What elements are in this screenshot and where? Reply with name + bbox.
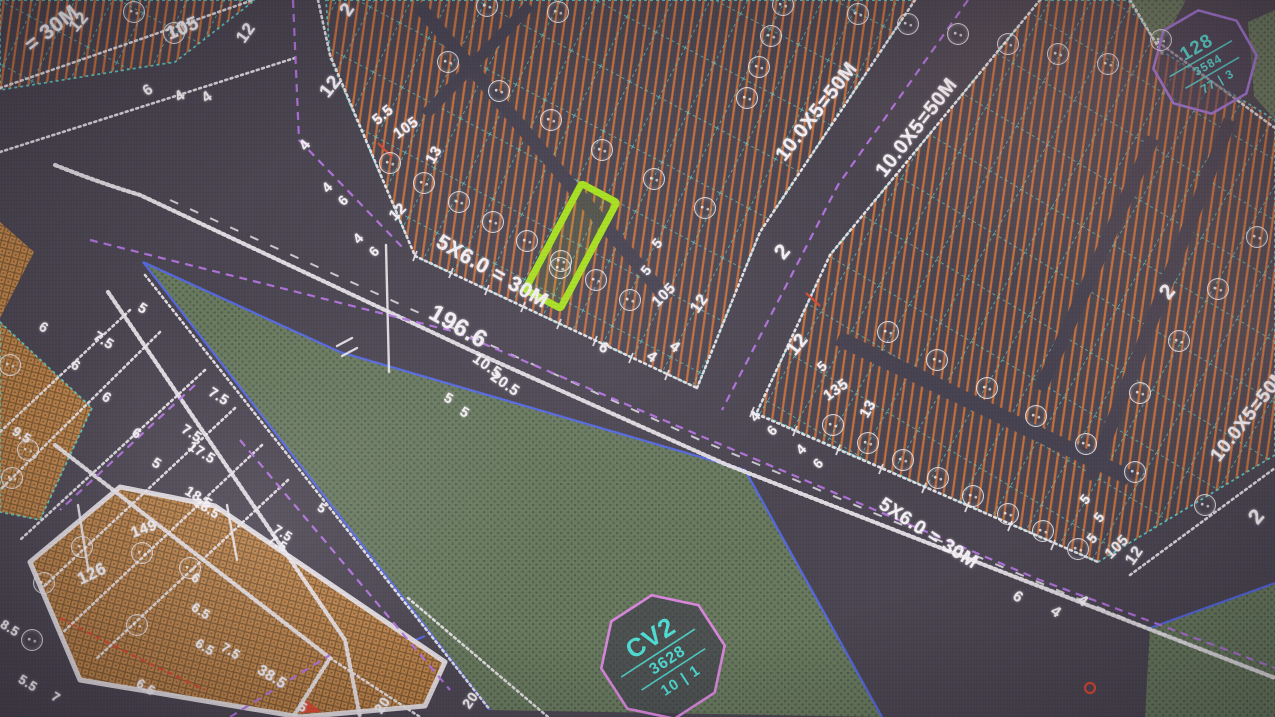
block-top-left: [0, 0, 300, 120]
park-bottom-right: [1145, 583, 1275, 717]
cad-canvas: CV2 3628 10 | 1 128 3584 77 | 3: [0, 0, 1275, 717]
cad-screen-photo: CV2 3628 10 | 1 128 3584 77 | 3 = 30M121…: [0, 0, 1275, 717]
red-circle-marker: [1085, 683, 1095, 693]
section-line: [386, 245, 389, 372]
